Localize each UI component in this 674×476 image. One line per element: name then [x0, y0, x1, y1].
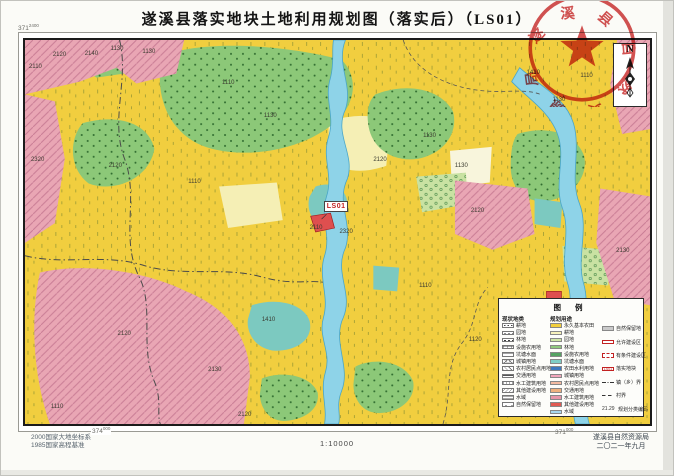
legend-item-label: 园地 [564, 336, 574, 343]
parcel-code-label: 2140 [85, 51, 98, 57]
legend-swatch [502, 345, 514, 350]
grid-coordinate-label: 374000 [91, 426, 111, 435]
legend-swatch [502, 338, 514, 343]
legend-swatch [602, 353, 614, 358]
legend-item: 允许建设区 [602, 335, 644, 348]
legend-item-label: 坑塘水面 [564, 358, 584, 365]
legend: 图 例 现状地类耕地园地林地设施农用地坑塘水面城镇用地农村居民点用地交通用地水工… [498, 298, 644, 417]
legend-swatch [550, 323, 562, 328]
legend-item-label: 规划分类编码 [618, 406, 648, 413]
legend-item: 永久基本农田 [550, 322, 599, 329]
parcel-code-label: 2130 [208, 367, 221, 373]
legend-item: 林地 [502, 336, 547, 343]
legend-swatch [502, 381, 514, 386]
map-scale: 1:10000 [1, 439, 673, 448]
legend-item: 园地 [502, 329, 547, 336]
legend-column: 现状地类耕地园地林地设施农用地坑塘水面城镇用地农村居民点用地交通用地水工建筑用地… [502, 315, 547, 416]
legend-swatch [502, 402, 514, 407]
legend-item: 坑塘水面 [550, 358, 599, 365]
legend-column-header: 现状地类 [502, 315, 547, 322]
legend-item-label: 林地 [516, 336, 526, 343]
legend-item: 21.29规划分类编码 [602, 402, 644, 415]
legend-item-label: 园地 [516, 329, 526, 336]
legend-title: 图 例 [502, 302, 640, 313]
legend-swatch [502, 388, 514, 393]
legend-columns: 现状地类耕地园地林地设施农用地坑塘水面城镇用地农村居民点用地交通用地水工建筑用地… [502, 315, 640, 416]
legend-swatch [550, 374, 562, 379]
parcel-code-label: 1130 [142, 49, 155, 55]
legend-item: 镇（乡）界 [602, 376, 644, 389]
legend-item-label: 林地 [564, 344, 574, 351]
map-sheet: 遂溪县落实地块土地利用规划图（落实后）（LS01） [0, 0, 674, 476]
parcel-code-label: 2320 [31, 157, 44, 163]
parcel-code-label: 2110 [310, 225, 323, 231]
legend-item-label: 水工建筑用地 [516, 380, 546, 387]
legend-item-label: 交通用地 [516, 372, 536, 379]
legend-swatch [550, 345, 562, 350]
legend-swatch: 21.29 [602, 407, 616, 412]
legend-swatch [502, 331, 514, 336]
legend-swatch [502, 323, 514, 328]
legend-swatch [502, 359, 514, 364]
legend-item: 有条件建设区 [602, 349, 644, 362]
legend-swatch [550, 410, 562, 415]
legend-item-label: 其他建设用地 [564, 401, 594, 408]
parcel-code-label: 2120 [238, 412, 251, 418]
compass-icon [620, 56, 640, 100]
legend-item-label: 农村居民点用地 [516, 365, 551, 372]
legend-item: 耕地 [502, 322, 547, 329]
parcel-code-label: 1130 [552, 97, 565, 103]
grid-coordinate-label: 371000 [555, 427, 573, 436]
legend-item-label: 镇（乡）界 [616, 379, 641, 386]
legend-item: 其他建设用地 [550, 401, 599, 408]
legend-item: 交通用地 [502, 372, 547, 379]
parcel-code-label: 1130 [455, 163, 468, 169]
north-arrow: N [613, 43, 647, 107]
legend-swatch [602, 340, 614, 345]
parcel-code-label: 2130 [616, 248, 629, 254]
legend-item: 村界 [602, 389, 644, 402]
legend-item-label: 其他建设用地 [516, 387, 546, 394]
page-title: 遂溪县落实地块土地利用规划图（落实后）（LS01） [1, 8, 673, 29]
legend-column-header [602, 315, 644, 322]
legend-item: 自然保留地 [502, 401, 547, 408]
legend-swatch [602, 326, 614, 331]
ls01-callout: LS01 [324, 201, 349, 212]
parcel-code-label: 1130 [264, 113, 277, 119]
legend-item: 设施农用地 [550, 351, 599, 358]
parcel-code-label: 1410 [527, 70, 540, 76]
north-label: N [614, 44, 646, 56]
legend-item-label: 水工建筑用地 [564, 394, 594, 401]
legend-item-label: 设施农用地 [516, 344, 541, 351]
legend-item: 城镇用地 [502, 358, 547, 365]
legend-swatch [502, 374, 514, 379]
legend-item-label: 坑塘水面 [516, 351, 536, 358]
parcel-code-label: 1120 [469, 337, 482, 343]
map-canvas: 2110212021401130113011101130232021201110… [23, 38, 652, 426]
legend-item-label: 落实地块 [616, 365, 636, 372]
legend-item-label: 允许建设区 [616, 339, 641, 346]
legend-item-label: 城镇用地 [516, 358, 536, 365]
parcel-code-label: 2120 [373, 157, 386, 163]
legend-swatch [550, 352, 562, 357]
legend-item-label: 耕地 [516, 322, 526, 329]
legend-item: 设施农用地 [502, 344, 547, 351]
legend-swatch [502, 352, 514, 357]
legend-swatch [502, 395, 514, 400]
legend-item: 交通用地 [550, 387, 599, 394]
legend-swatch [550, 331, 562, 336]
parcel-code-label: 1130 [111, 46, 124, 52]
parcel-code-label: 1130 [423, 133, 436, 139]
parcel-code-label: 2120 [118, 331, 131, 337]
legend-item: 农村居民点用地 [502, 365, 547, 372]
parcel-code-label: 2120 [53, 52, 66, 58]
legend-item: 自然保留地 [602, 322, 644, 335]
legend-swatch [550, 366, 562, 371]
legend-item-label: 村界 [616, 392, 626, 399]
scan-edge-bottom [1, 470, 673, 475]
legend-item: 林地 [550, 344, 599, 351]
parcel-code-label: 1110 [188, 179, 200, 185]
parcel-code-label: 1110 [419, 283, 431, 289]
legend-item: 其他建设用地 [502, 387, 547, 394]
legend-column: 规划用途永久基本农田耕地园地林地设施农用地坑塘水面农田水利用地城镇用地农村居民点… [550, 315, 599, 416]
legend-item-label: 水域 [516, 394, 526, 401]
legend-swatch [550, 388, 562, 393]
legend-swatch: LS01 [602, 367, 614, 372]
legend-item: 耕地 [550, 329, 599, 336]
legend-item: LS01落实地块 [602, 362, 644, 375]
legend-item-label: 城镇用地 [564, 372, 584, 379]
legend-item-label: 农田水利用地 [564, 365, 594, 372]
legend-swatch [550, 395, 562, 400]
legend-swatch [602, 382, 614, 383]
legend-swatch [550, 338, 562, 343]
legend-swatch [602, 395, 614, 396]
legend-item-label: 耕地 [564, 329, 574, 336]
legend-item-label: 交通用地 [564, 387, 584, 394]
grid-coordinate-label: 3712400 [18, 23, 39, 32]
legend-item-label: 水域 [564, 408, 574, 415]
legend-swatch [550, 359, 562, 364]
legend-item: 水域 [550, 408, 599, 415]
issue-date: 二〇二一年九月 [593, 442, 649, 451]
legend-item-label: 设施农用地 [564, 351, 589, 358]
map-frame: 2110212021401130113011101130232021201110… [18, 32, 657, 432]
legend-item: 水域 [502, 394, 547, 401]
parcel-code-label: 2120 [109, 163, 122, 169]
agency-name: 遂溪县自然资源局 [593, 433, 649, 442]
parcel-code-label: 2320 [339, 229, 352, 235]
legend-item: 农田水利用地 [550, 365, 599, 372]
parcel-code-label: 2120 [471, 208, 484, 214]
parcel-code-label: 1110 [222, 80, 234, 86]
legend-swatch [550, 402, 562, 407]
legend-item-label: 自然保留地 [516, 401, 541, 408]
parcel-code-label: 2110 [29, 64, 42, 70]
legend-swatch [502, 366, 514, 371]
legend-item-label: 自然保留地 [616, 325, 641, 332]
legend-item-label: 永久基本农田 [564, 322, 594, 329]
legend-item: 城镇用地 [550, 372, 599, 379]
legend-item: 水工建筑用地 [502, 380, 547, 387]
scan-edge-right [663, 1, 673, 475]
parcel-code-label: 1410 [262, 317, 275, 323]
parcel-code-label: 1110 [580, 73, 592, 79]
issuing-agency: 遂溪县自然资源局 二〇二一年九月 [593, 433, 649, 451]
legend-item: 水工建筑用地 [550, 394, 599, 401]
legend-item-label: 有条件建设区 [616, 352, 646, 359]
legend-item: 农村居民点用地 [550, 380, 599, 387]
parcel-code-label: 1110 [51, 404, 63, 410]
legend-column: 自然保留地允许建设区有条件建设区LS01落实地块镇（乡）界村界21.29规划分类… [602, 315, 644, 416]
legend-item: 坑塘水面 [502, 351, 547, 358]
legend-item-label: 农村居民点用地 [564, 380, 599, 387]
legend-item: 园地 [550, 336, 599, 343]
legend-swatch [550, 381, 562, 386]
legend-column-header: 规划用途 [550, 315, 599, 322]
